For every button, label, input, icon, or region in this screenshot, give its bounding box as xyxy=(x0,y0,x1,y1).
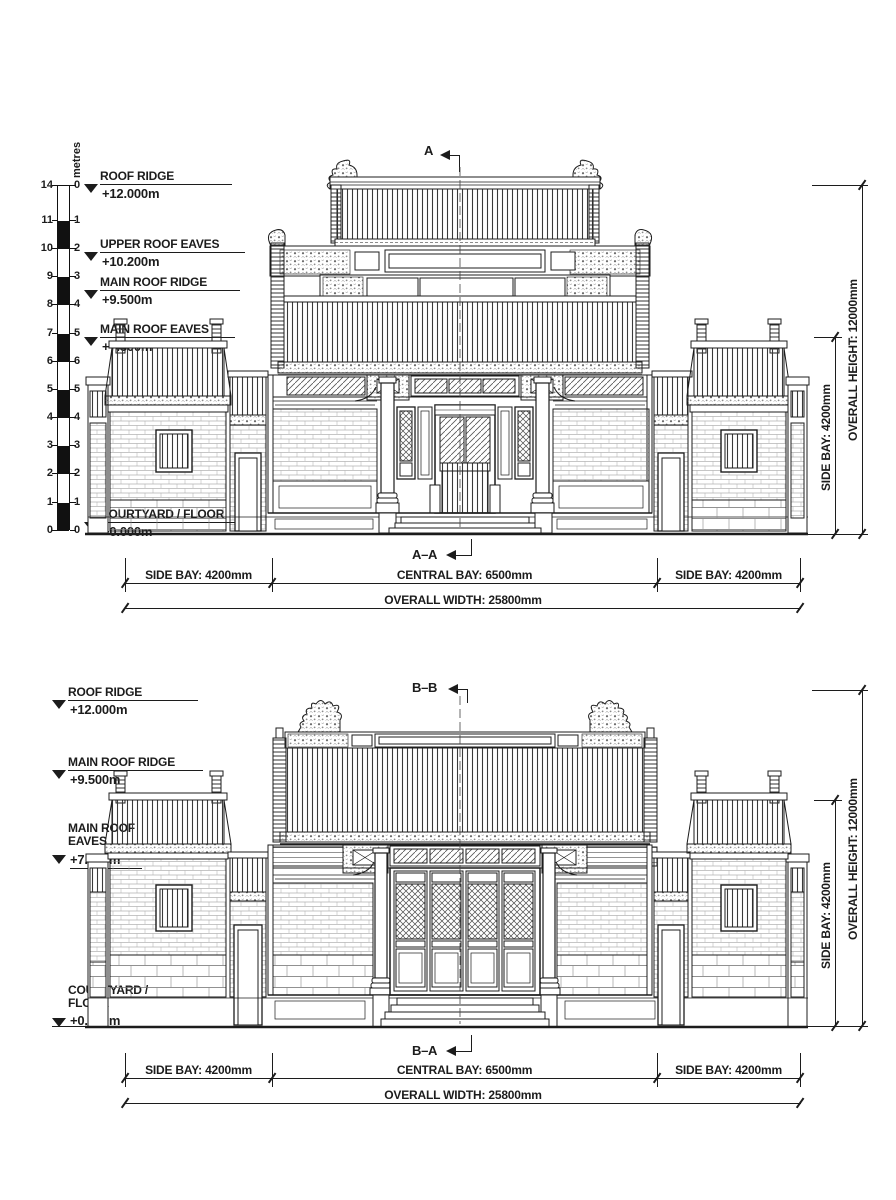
section-marker-label: A–A xyxy=(412,547,437,562)
side-tower-right xyxy=(687,319,791,531)
dim-label-side-bay-left: SIDE BAY: 4200mm xyxy=(125,1063,272,1077)
scale-unit-label: metres xyxy=(71,134,83,178)
outer-wall-right xyxy=(786,377,809,533)
steps xyxy=(381,998,549,1027)
dim-label-side-bay-right: SIDE BAY: 4200mm xyxy=(657,1063,800,1077)
tower-louver-window xyxy=(156,885,192,931)
dim-extension-line xyxy=(800,558,801,592)
architectural-drawing-sheet: { "drawing": { "colors": {"ink": "#1c1c1… xyxy=(0,0,896,1200)
recessed-bay-right xyxy=(652,371,692,531)
lattice-window-right xyxy=(515,407,533,479)
dim-line xyxy=(835,800,836,1027)
dim-extension-line xyxy=(800,1053,801,1087)
section-arrow-icon xyxy=(446,550,456,560)
section-marker-line xyxy=(456,555,472,556)
dim-label-overall-width: OVERALL WIDTH: 25800mm xyxy=(125,593,801,607)
level-marker-icon xyxy=(52,700,66,709)
level-marker-icon xyxy=(52,770,66,779)
section-marker-line xyxy=(471,1035,472,1052)
recessed-bay-left xyxy=(228,852,268,1025)
lattice-window-left xyxy=(397,407,415,479)
dim-label-central-bay: CENTRAL BAY: 6500mm xyxy=(272,568,657,582)
dim-line xyxy=(835,337,836,535)
dim-extension-line xyxy=(814,337,842,338)
dim-line xyxy=(862,690,863,1027)
dim-label-side-bay-left: SIDE BAY: 4200mm xyxy=(125,568,272,582)
door-leaf xyxy=(466,871,499,991)
door-leaf xyxy=(394,871,427,991)
section-marker-line xyxy=(471,539,472,556)
tower-louver-window xyxy=(721,430,757,472)
ridge-crest xyxy=(285,701,645,749)
dim-extension-line xyxy=(814,800,842,801)
dim-label-central-bay: CENTRAL BAY: 6500mm xyxy=(272,1063,657,1077)
bay-door xyxy=(658,925,684,1025)
dim-label-side-bay-height: SIDE BAY: 4200mm xyxy=(819,818,833,1013)
side-tower-right xyxy=(687,771,791,997)
dim-line xyxy=(125,608,801,609)
dim-label-overall-height: OVERALL HEIGHT: 12000mm xyxy=(846,255,860,465)
outer-wall-right xyxy=(786,854,809,1027)
elevation-a-drawing xyxy=(85,155,810,540)
bay-door xyxy=(235,453,261,531)
recessed-bay-right xyxy=(652,852,690,1025)
outer-wall-left xyxy=(86,854,110,1027)
dim-label-overall-height: OVERALL HEIGHT: 12000mm xyxy=(846,753,860,965)
side-tower-left xyxy=(105,319,231,531)
entrance-door xyxy=(430,405,500,513)
tower-louver-window xyxy=(156,430,192,472)
ground-line-extension xyxy=(52,1026,85,1027)
steps xyxy=(389,517,541,533)
elevation-b-drawing xyxy=(85,690,810,1030)
bay-door xyxy=(658,453,684,531)
dim-label-side-bay-right: SIDE BAY: 4200mm xyxy=(657,568,800,582)
door-leaf xyxy=(502,871,535,991)
dim-line xyxy=(125,1078,801,1079)
entrance-doors xyxy=(390,868,540,995)
tower-louver-window xyxy=(721,885,757,931)
dim-label-overall-width: OVERALL WIDTH: 25800mm xyxy=(125,1088,801,1102)
section-marker-line xyxy=(456,1051,472,1052)
clerestory-panels xyxy=(390,846,540,866)
door-leaf xyxy=(430,871,463,991)
dim-label-side-bay-height: SIDE BAY: 4200mm xyxy=(819,347,833,529)
level-marker-icon xyxy=(52,855,66,864)
dim-line xyxy=(862,185,863,535)
ridge-finial-left xyxy=(298,701,341,733)
ridge-finial-right xyxy=(589,701,632,733)
recessed-bay-left xyxy=(228,371,268,531)
dim-line xyxy=(125,1103,801,1104)
section-arrow-icon xyxy=(446,1046,456,1056)
section-marker-label: B–A xyxy=(412,1043,437,1058)
upper-roof xyxy=(327,160,603,246)
bay-door xyxy=(234,925,262,1025)
dim-line xyxy=(125,583,801,584)
side-tower-left xyxy=(105,771,231,997)
